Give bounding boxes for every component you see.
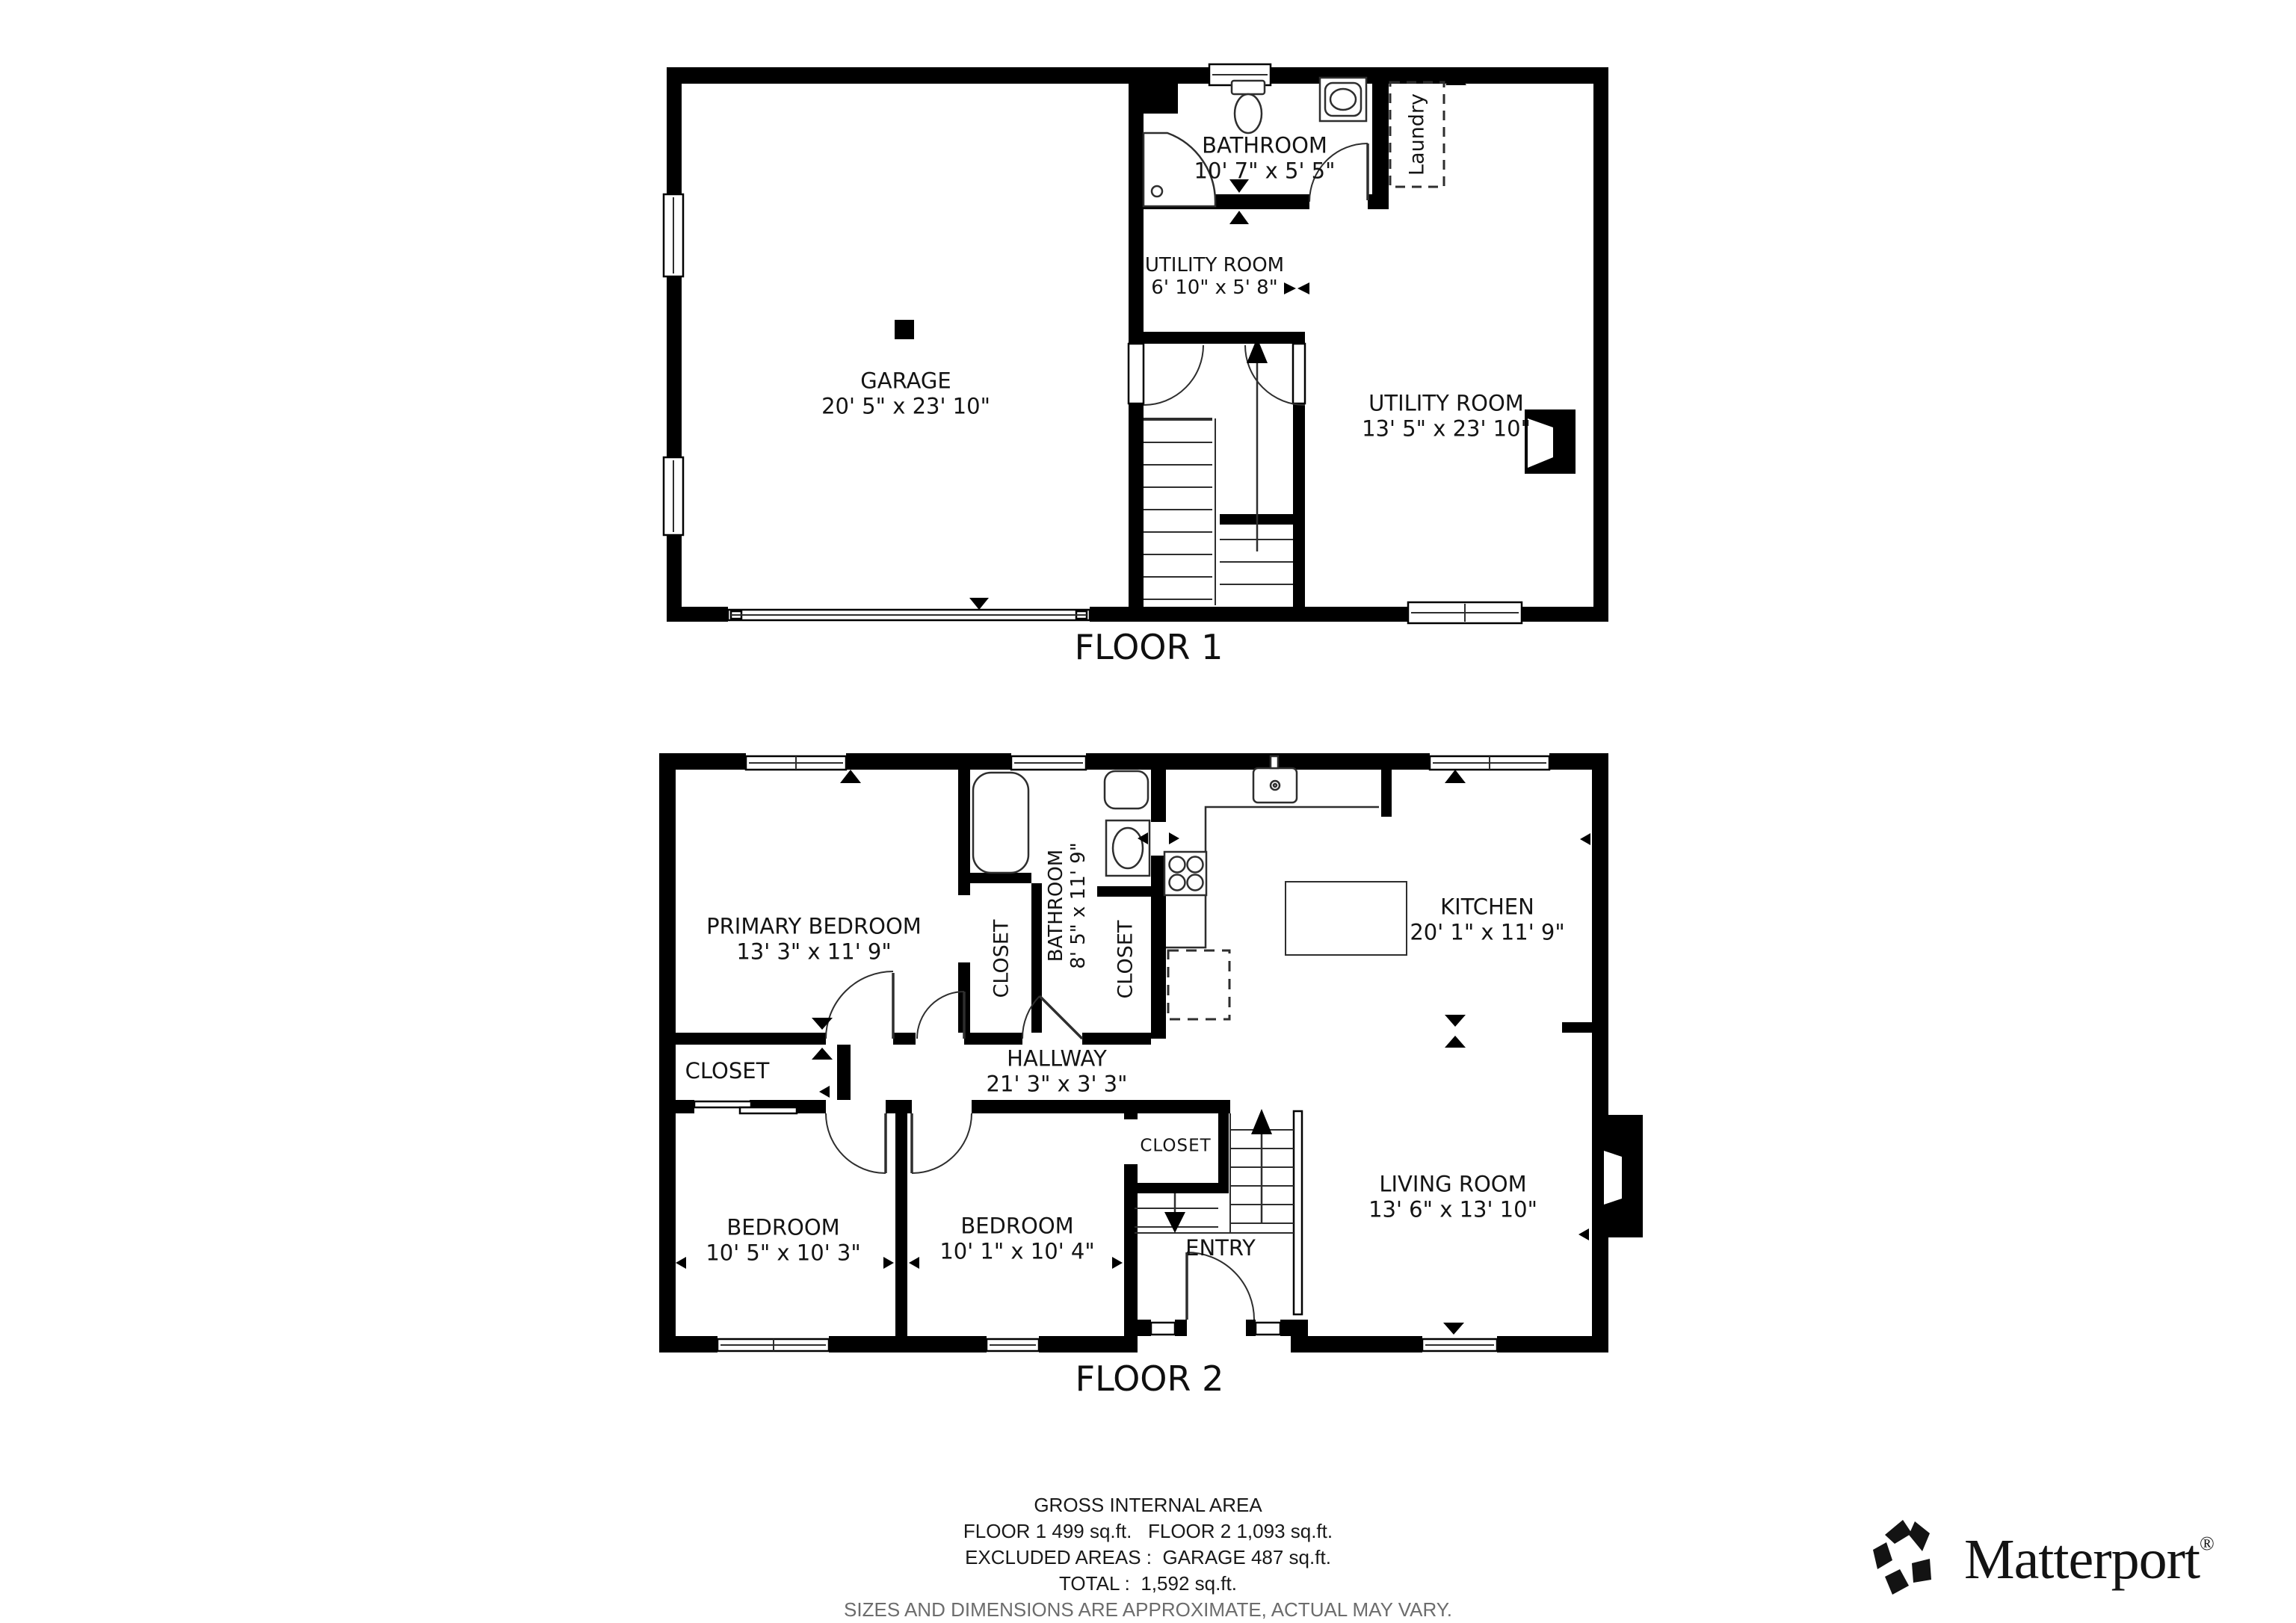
room-label-primary-bedroom: PRIMARY BEDROOM 13' 3" x 11' 9" xyxy=(706,914,922,964)
room-label-utility: UTILITY ROOM 13' 5" x 23' 10" xyxy=(1362,391,1531,441)
room-name: HALLWAY xyxy=(987,1046,1128,1072)
room-label-hallway: HALLWAY 21' 3" x 3' 3" xyxy=(987,1046,1128,1096)
footer-line-excluded: EXCLUDED AREAS : GARAGE 487 sq.ft. xyxy=(844,1545,1452,1571)
kitchen-island xyxy=(1286,882,1407,955)
room-dims: 20' 1" x 11' 9" xyxy=(1410,920,1564,945)
room-label-bedroom-left: BEDROOM 10' 5" x 10' 3" xyxy=(706,1215,860,1265)
footer-line-total: TOTAL : 1,592 sq.ft. xyxy=(844,1571,1452,1597)
room-name: CLOSET xyxy=(1140,1137,1211,1157)
room-label-closet-hallway: CLOSET xyxy=(685,1059,770,1084)
matterport-logo-icon xyxy=(1870,1514,1945,1605)
room-name: PRIMARY BEDROOM xyxy=(706,914,922,939)
room-dims: 10' 7" x 5' 5" xyxy=(1194,158,1336,184)
registered-mark-icon: ® xyxy=(2200,1533,2215,1554)
room-label-living-room: LIVING ROOM 13' 6" x 13' 10" xyxy=(1368,1172,1537,1222)
floorplan-page: BATHROOM 10' 7" x 5' 5" Laundry UTILITY … xyxy=(0,0,2296,1623)
room-name: BATHROOM xyxy=(1194,133,1336,158)
room-label-kitchen: KITCHEN 20' 1" x 11' 9" xyxy=(1410,894,1564,945)
room-dims: 6' 10" x 5' 8" xyxy=(1145,276,1284,299)
stove xyxy=(1164,852,1206,895)
room-dims: 21' 3" x 3' 3" xyxy=(987,1072,1128,1097)
room-label-bathroom-f1: BATHROOM 10' 7" x 5' 5" xyxy=(1194,133,1336,183)
floor2-plan-drawing xyxy=(650,744,1652,1379)
room-dims: 13' 3" x 11' 9" xyxy=(706,939,922,965)
brand-wordmark: Matterport® xyxy=(1964,1527,2215,1592)
room-name: GARAGE xyxy=(821,368,990,394)
room-dims: 8' 5" x 11' 9" xyxy=(1067,842,1090,968)
footer-line-disclaimer: SIZES AND DIMENSIONS ARE APPROXIMATE, AC… xyxy=(844,1597,1452,1623)
living-fireplace-opening xyxy=(1604,1151,1622,1205)
floor1-title: FLOOR 1 xyxy=(1075,627,1223,667)
room-label-entry: ENTRY xyxy=(1185,1236,1256,1261)
room-label-closet-entry: CLOSET xyxy=(1140,1137,1211,1157)
room-dims: 10' 5" x 10' 3" xyxy=(706,1240,860,1266)
room-dims: 13' 6" x 13' 10" xyxy=(1368,1197,1537,1222)
room-label-utility-small: UTILITY ROOM 6' 10" x 5' 8" xyxy=(1145,254,1284,299)
room-name: CLOSET xyxy=(1114,921,1137,999)
room-label-closet-primary: CLOSET xyxy=(990,920,1013,998)
room-name: Laundry xyxy=(1405,93,1428,176)
room-name: BATHROOM xyxy=(1045,842,1067,968)
entry-closet-door-gap xyxy=(1124,1119,1138,1164)
room-label-closet-bath: CLOSET xyxy=(1114,921,1137,999)
room-name: BEDROOM xyxy=(706,1215,860,1240)
room-name: CLOSET xyxy=(685,1059,770,1084)
room-label-bathroom-f2: BATHROOM 8' 5" x 11' 9" xyxy=(1045,842,1090,968)
room-name: UTILITY ROOM xyxy=(1362,391,1531,416)
room-name: LIVING ROOM xyxy=(1368,1172,1537,1197)
room-dims: 20' 5" x 23' 10" xyxy=(821,394,990,419)
floor1-window-mullions xyxy=(673,75,1519,622)
room-name: UTILITY ROOM xyxy=(1145,254,1284,276)
room-label-bedroom-middle: BEDROOM 10' 1" x 10' 4" xyxy=(939,1214,1094,1264)
room-name: KITCHEN xyxy=(1410,894,1564,920)
brand-name: Matterport xyxy=(1964,1528,2200,1591)
room-dims: 13' 5" x 23' 10" xyxy=(1362,416,1531,442)
room-name: ENTRY xyxy=(1185,1236,1256,1261)
matterport-brand: Matterport® xyxy=(1870,1514,2215,1605)
dishwasher-dashed-zone xyxy=(1168,950,1229,1019)
room-label-garage: GARAGE 20' 5" x 23' 10" xyxy=(821,368,990,418)
floor2-title: FLOOR 2 xyxy=(1076,1358,1224,1399)
floor1-plan-drawing xyxy=(650,52,1637,635)
floor1-windows xyxy=(664,64,1522,623)
bathtub xyxy=(973,773,1028,873)
room-label-laundry: Laundry xyxy=(1405,93,1428,176)
gross-internal-area-summary: GROSS INTERNAL AREA FLOOR 1 499 sq.ft. F… xyxy=(844,1492,1452,1623)
room-name: BEDROOM xyxy=(939,1214,1094,1239)
footer-line-title: GROSS INTERNAL AREA xyxy=(844,1492,1452,1518)
room-dims: 10' 1" x 10' 4" xyxy=(939,1239,1094,1264)
floor1-stairs xyxy=(1144,353,1293,605)
toilet xyxy=(1105,771,1148,809)
room-name: CLOSET xyxy=(990,920,1013,998)
footer-line-floors: FLOOR 1 499 sq.ft. FLOOR 2 1,093 sq.ft. xyxy=(844,1518,1452,1545)
